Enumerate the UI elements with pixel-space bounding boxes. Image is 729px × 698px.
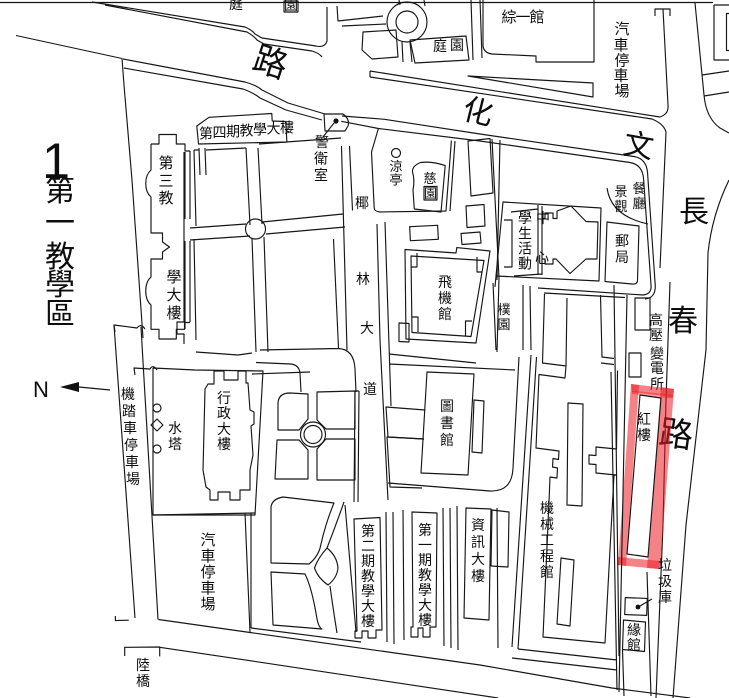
svg-text:汽: 汽 [200, 532, 215, 549]
svg-text:園: 園 [424, 186, 437, 201]
svg-text:文: 文 [621, 128, 656, 166]
svg-text:行: 行 [217, 390, 231, 406]
svg-text:緣: 緣 [627, 622, 641, 638]
svg-text:郵: 郵 [615, 233, 629, 249]
svg-text:第: 第 [361, 523, 375, 539]
svg-text:紅: 紅 [637, 411, 651, 427]
svg-text:館: 館 [440, 432, 454, 448]
svg-text:景: 景 [614, 184, 627, 199]
svg-text:庭: 庭 [229, 0, 243, 12]
svg-text:車: 車 [200, 580, 215, 597]
svg-text:中: 中 [536, 210, 550, 226]
svg-text:學: 學 [166, 268, 181, 286]
svg-text:館: 館 [438, 306, 452, 322]
svg-text:場: 場 [126, 471, 140, 487]
svg-text:大: 大 [471, 551, 485, 567]
svg-text:機: 機 [438, 290, 452, 306]
svg-text:車: 車 [613, 68, 628, 85]
svg-text:道: 道 [363, 381, 377, 397]
svg-text:教: 教 [240, 123, 254, 139]
svg-text:電: 電 [650, 360, 664, 376]
svg-text:教: 教 [418, 567, 432, 583]
svg-text:第: 第 [418, 522, 432, 538]
svg-text:樓: 樓 [280, 120, 294, 136]
svg-text:園: 園 [284, 0, 298, 13]
svg-text:資: 資 [471, 517, 485, 533]
svg-text:高: 高 [649, 312, 663, 328]
svg-text:區: 區 [45, 298, 75, 331]
svg-text:圖: 圖 [440, 398, 454, 414]
svg-text:局: 局 [615, 249, 629, 265]
svg-text:綜: 綜 [501, 9, 516, 26]
svg-text:樓: 樓 [637, 427, 651, 443]
svg-text:第: 第 [199, 126, 213, 142]
svg-text:學: 學 [253, 122, 267, 138]
svg-text:樓: 樓 [217, 436, 231, 452]
svg-text:第: 第 [158, 154, 173, 172]
svg-text:四: 四 [213, 125, 227, 141]
svg-text:大: 大 [166, 287, 181, 304]
svg-text:一: 一 [515, 9, 530, 26]
svg-text:館: 館 [529, 9, 544, 26]
svg-text:動: 動 [518, 256, 532, 272]
svg-text:垃: 垃 [658, 557, 672, 573]
svg-text:政: 政 [217, 405, 231, 421]
svg-text:心: 心 [535, 250, 549, 266]
svg-text:機: 機 [540, 500, 554, 516]
svg-text:車: 車 [123, 420, 137, 436]
svg-text:第: 第 [45, 175, 75, 208]
svg-text:車: 車 [125, 454, 139, 470]
svg-text:亭: 亭 [389, 173, 402, 188]
svg-text:橋: 橋 [136, 673, 150, 689]
svg-text:汽: 汽 [614, 21, 629, 38]
svg-text:大: 大 [267, 121, 281, 137]
svg-text:林: 林 [356, 271, 370, 287]
svg-text:車: 車 [200, 548, 215, 565]
svg-text:椰: 椰 [355, 195, 369, 211]
svg-text:期: 期 [418, 552, 432, 568]
svg-text:學: 學 [361, 583, 375, 599]
svg-text:餐: 餐 [632, 181, 645, 196]
svg-text:三: 三 [158, 173, 173, 190]
svg-text:場: 場 [614, 83, 629, 100]
svg-text:踏: 踏 [122, 403, 136, 419]
svg-text:一: 一 [45, 207, 75, 240]
svg-text:園: 園 [450, 37, 464, 53]
svg-text:工: 工 [540, 532, 554, 548]
svg-text:陸: 陸 [136, 657, 150, 673]
svg-text:二: 二 [361, 538, 375, 554]
svg-text:館: 館 [627, 637, 641, 653]
svg-text:園: 園 [497, 317, 510, 332]
svg-text:庫: 庫 [658, 589, 672, 605]
svg-text:壓: 壓 [649, 327, 663, 343]
svg-text:大: 大 [418, 597, 432, 613]
svg-text:學: 學 [518, 210, 532, 226]
svg-text:圾: 圾 [658, 573, 672, 589]
svg-text:樓: 樓 [471, 568, 485, 584]
svg-text:樓: 樓 [361, 613, 375, 629]
svg-text:訊: 訊 [471, 534, 485, 550]
svg-text:停: 停 [124, 437, 138, 453]
svg-text:廳: 廳 [632, 196, 645, 211]
svg-text:生: 生 [518, 226, 532, 242]
svg-text:觀: 觀 [614, 199, 627, 214]
svg-text:學: 學 [418, 582, 432, 598]
svg-text:程: 程 [540, 548, 554, 564]
svg-text:慈: 慈 [423, 171, 436, 186]
svg-text:械: 械 [540, 516, 554, 532]
svg-text:樓: 樓 [166, 305, 181, 322]
svg-text:一: 一 [418, 537, 432, 553]
svg-text:大: 大 [217, 421, 231, 437]
svg-text:水: 水 [168, 420, 182, 436]
svg-text:停: 停 [200, 564, 215, 581]
svg-text:機: 機 [121, 386, 135, 402]
svg-text:車: 車 [613, 37, 628, 54]
svg-text:長: 長 [679, 196, 709, 229]
svg-text:活: 活 [518, 241, 532, 257]
svg-text:期: 期 [361, 553, 375, 569]
svg-text:飛: 飛 [438, 274, 452, 290]
svg-text:塔: 塔 [168, 436, 182, 452]
svg-text:館: 館 [540, 564, 554, 580]
svg-text:大: 大 [361, 598, 375, 614]
svg-text:書: 書 [440, 415, 454, 431]
svg-text:教: 教 [158, 190, 173, 207]
svg-text:樸: 樸 [497, 302, 510, 317]
svg-text:場: 場 [200, 596, 215, 613]
svg-text:樓: 樓 [418, 612, 432, 628]
svg-text:春: 春 [668, 305, 698, 338]
svg-text:室: 室 [314, 167, 328, 183]
svg-text:教: 教 [361, 568, 375, 584]
svg-text:期: 期 [226, 124, 240, 140]
svg-text:警: 警 [315, 134, 329, 150]
svg-text:N: N [33, 377, 49, 402]
svg-text:衛: 衛 [314, 151, 328, 167]
svg-text:大: 大 [360, 320, 374, 336]
svg-text:庭: 庭 [433, 38, 447, 54]
